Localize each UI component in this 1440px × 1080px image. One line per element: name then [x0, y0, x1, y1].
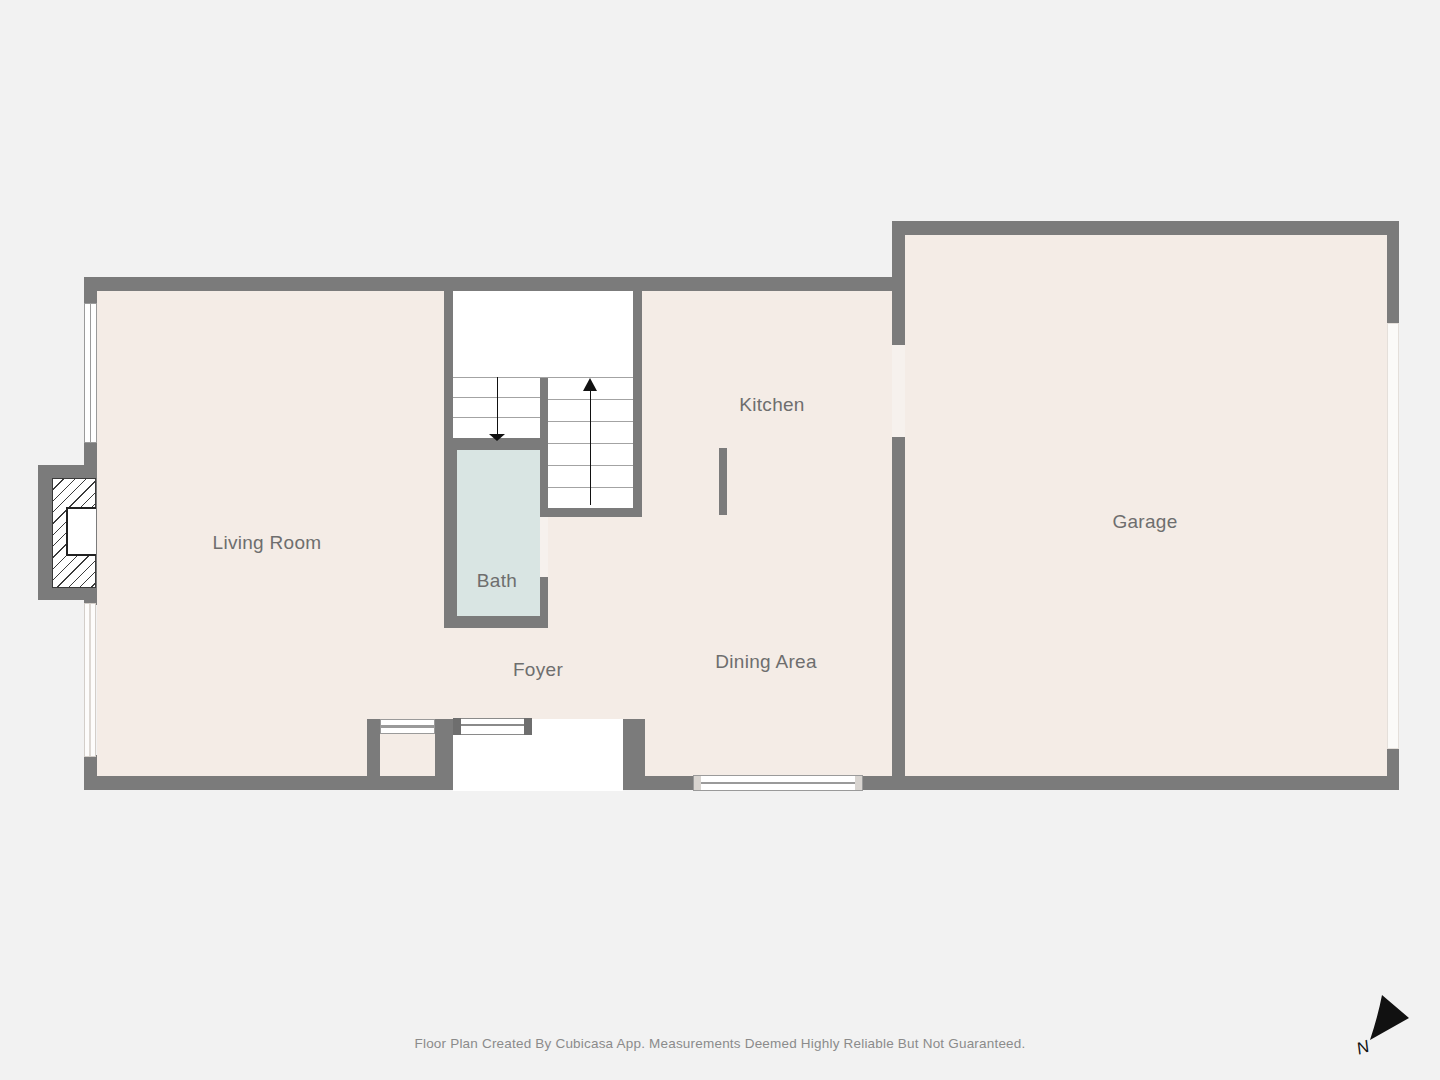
wall-bath-right-lower — [540, 577, 548, 616]
dining-window-icon — [693, 775, 863, 791]
living-room-label: Living Room — [213, 532, 322, 554]
bath-label: Bath — [477, 570, 517, 592]
wall-garage-top — [892, 221, 1399, 235]
wall-alcove-left-stub — [367, 719, 380, 776]
wall-kitchen-stub — [719, 448, 727, 515]
footer-disclaimer: Floor Plan Created By Cubicasa App. Meas… — [0, 1036, 1440, 1051]
alcove-window-icon — [380, 719, 435, 734]
wall-bottom-left — [84, 776, 453, 790]
living-room-lower-window-icon — [84, 603, 96, 757]
wall-stairs-divider — [540, 377, 548, 517]
wall-left-upper — [84, 277, 97, 303]
front-door-icon — [453, 718, 532, 735]
wall-left-mid — [84, 443, 97, 467]
wall-bath-bottom — [444, 616, 548, 628]
stair-landing-edge — [453, 377, 633, 378]
kitchen-garage-door-opening — [892, 345, 905, 437]
front-door-jamb-left — [453, 718, 461, 735]
stairs-up-arrow-line — [590, 390, 591, 505]
stairs-down-arrow-line — [497, 377, 498, 434]
foyer-label: Foyer — [513, 659, 563, 681]
stairs-down-arrow-icon — [489, 434, 505, 441]
living-room-window-icon — [84, 303, 97, 443]
entry-porch — [453, 735, 623, 791]
wall-stairs-bottom — [548, 508, 642, 517]
wall-main-top — [84, 277, 905, 291]
garage-label: Garage — [1112, 511, 1177, 533]
dining-area-label: Dining Area — [715, 651, 817, 673]
wall-stairwell-right — [633, 277, 642, 517]
wall-bath-left — [444, 450, 457, 616]
wall-garage-right-upper — [1387, 221, 1399, 323]
floor-plan-canvas: Living Room Bath Foyer Kitchen Dining Ar… — [0, 0, 1440, 1080]
kitchen-label: Kitchen — [739, 394, 804, 416]
dining-window-cap-right — [855, 776, 862, 790]
bath-door-opening — [540, 512, 548, 577]
wall-house-garage-lower — [892, 437, 905, 790]
wall-garage-bottom — [892, 776, 1399, 790]
garage-floor — [905, 235, 1387, 776]
stairs-up-arrow-icon — [583, 378, 597, 391]
front-door-jamb-right — [524, 718, 532, 735]
wall-stairwell-left — [444, 277, 453, 438]
wall-alcove-right — [435, 719, 453, 776]
dining-window-cap-left — [694, 776, 701, 790]
fireplace-firebox — [66, 507, 96, 556]
garage-door-icon — [1387, 323, 1399, 749]
wall-house-garage-upper — [892, 221, 905, 345]
entry-opening — [532, 719, 623, 735]
